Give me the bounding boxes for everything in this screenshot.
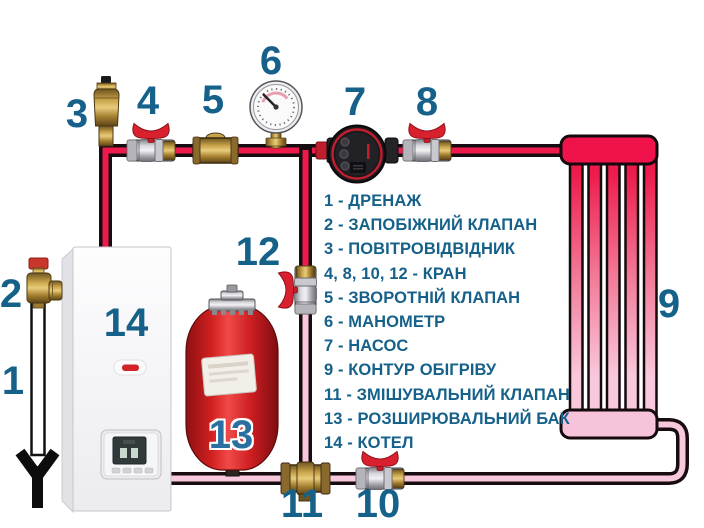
label-safety-valve: 2: [0, 274, 22, 314]
label-expansion-tank: 13: [209, 415, 254, 455]
label-valve-4: 4: [137, 81, 159, 121]
legend: 1 - ДРЕНАЖ 2 - ЗАПОБІЖНИЙ КЛАПАН 3 - ПОВ…: [324, 189, 570, 455]
expansion-tank-flange: [209, 285, 255, 315]
legend-item: 1 - ДРЕНАЖ: [324, 189, 570, 213]
label-radiator: 9: [658, 284, 680, 324]
label-valve-10: 10: [356, 484, 401, 524]
drain-pipe: [20, 303, 55, 508]
boiler-control-panel[interactable]: [101, 430, 161, 479]
safety-valve-cap: [29, 258, 48, 269]
boiler: [62, 247, 171, 512]
legend-item: 14 - КОТЕЛ: [324, 431, 570, 455]
legend-item: 13 - РОЗШИРЮВАЛЬНИЙ БАК: [324, 407, 570, 431]
radiator-bottom-header: [561, 410, 657, 438]
boiler-button[interactable]: [112, 468, 120, 473]
air-vent: [94, 76, 119, 146]
safety-valve: [27, 258, 62, 308]
label-manometer: 6: [260, 41, 282, 81]
legend-item: 7 - НАСОС: [324, 334, 570, 358]
label-air-vent: 3: [66, 94, 88, 134]
boiler-button[interactable]: [145, 468, 153, 473]
radiator: [561, 136, 657, 438]
pump-button[interactable]: [340, 150, 348, 158]
boiler-logo: [114, 360, 146, 375]
label-pump: 7: [344, 82, 366, 122]
label-boiler: 14: [104, 303, 149, 343]
legend-item: 11 - ЗМІШУВАЛЬНИЙ КЛАПАН: [324, 383, 570, 407]
boiler-button[interactable]: [134, 468, 142, 473]
legend-item: 6 - МАНОМЕТР: [324, 310, 570, 334]
pump-button[interactable]: [341, 162, 349, 170]
manometer: [250, 81, 302, 148]
radiator-top-header: [561, 136, 657, 164]
check-valve: [193, 133, 238, 164]
label-mixing-valve: 11: [281, 484, 323, 524]
diagram-canvas: 1 2 3 4 5 6 7 8 9 10 11 12 13 14 1 - ДРЕ…: [0, 0, 704, 528]
pump-brand-mark: [367, 144, 370, 159]
legend-item: 4, 8, 10, 12 - КРАН: [324, 262, 570, 286]
pump: [316, 126, 398, 183]
legend-item: 3 - ПОВІТРОВІДВІДНИК: [324, 237, 570, 261]
pump-button[interactable]: [341, 138, 349, 146]
label-valve-8: 8: [416, 82, 438, 122]
label-drain: 1: [2, 361, 24, 401]
legend-item: 5 - ЗВОРОТНІЙ КЛАПАН: [324, 286, 570, 310]
expansion-tank-label: [201, 354, 256, 396]
label-valve-12: 12: [236, 232, 281, 272]
label-check-valve: 5: [202, 80, 224, 120]
ball-valve-12: [279, 266, 317, 314]
boiler-button[interactable]: [123, 468, 131, 473]
legend-item: 9 - КОНТУР ОБІГРІВУ: [324, 358, 570, 382]
ball-valve-4: [127, 124, 175, 162]
ball-valve-8: [403, 124, 451, 162]
legend-item: 2 - ЗАПОБІЖНИЙ КЛАПАН: [324, 213, 570, 237]
